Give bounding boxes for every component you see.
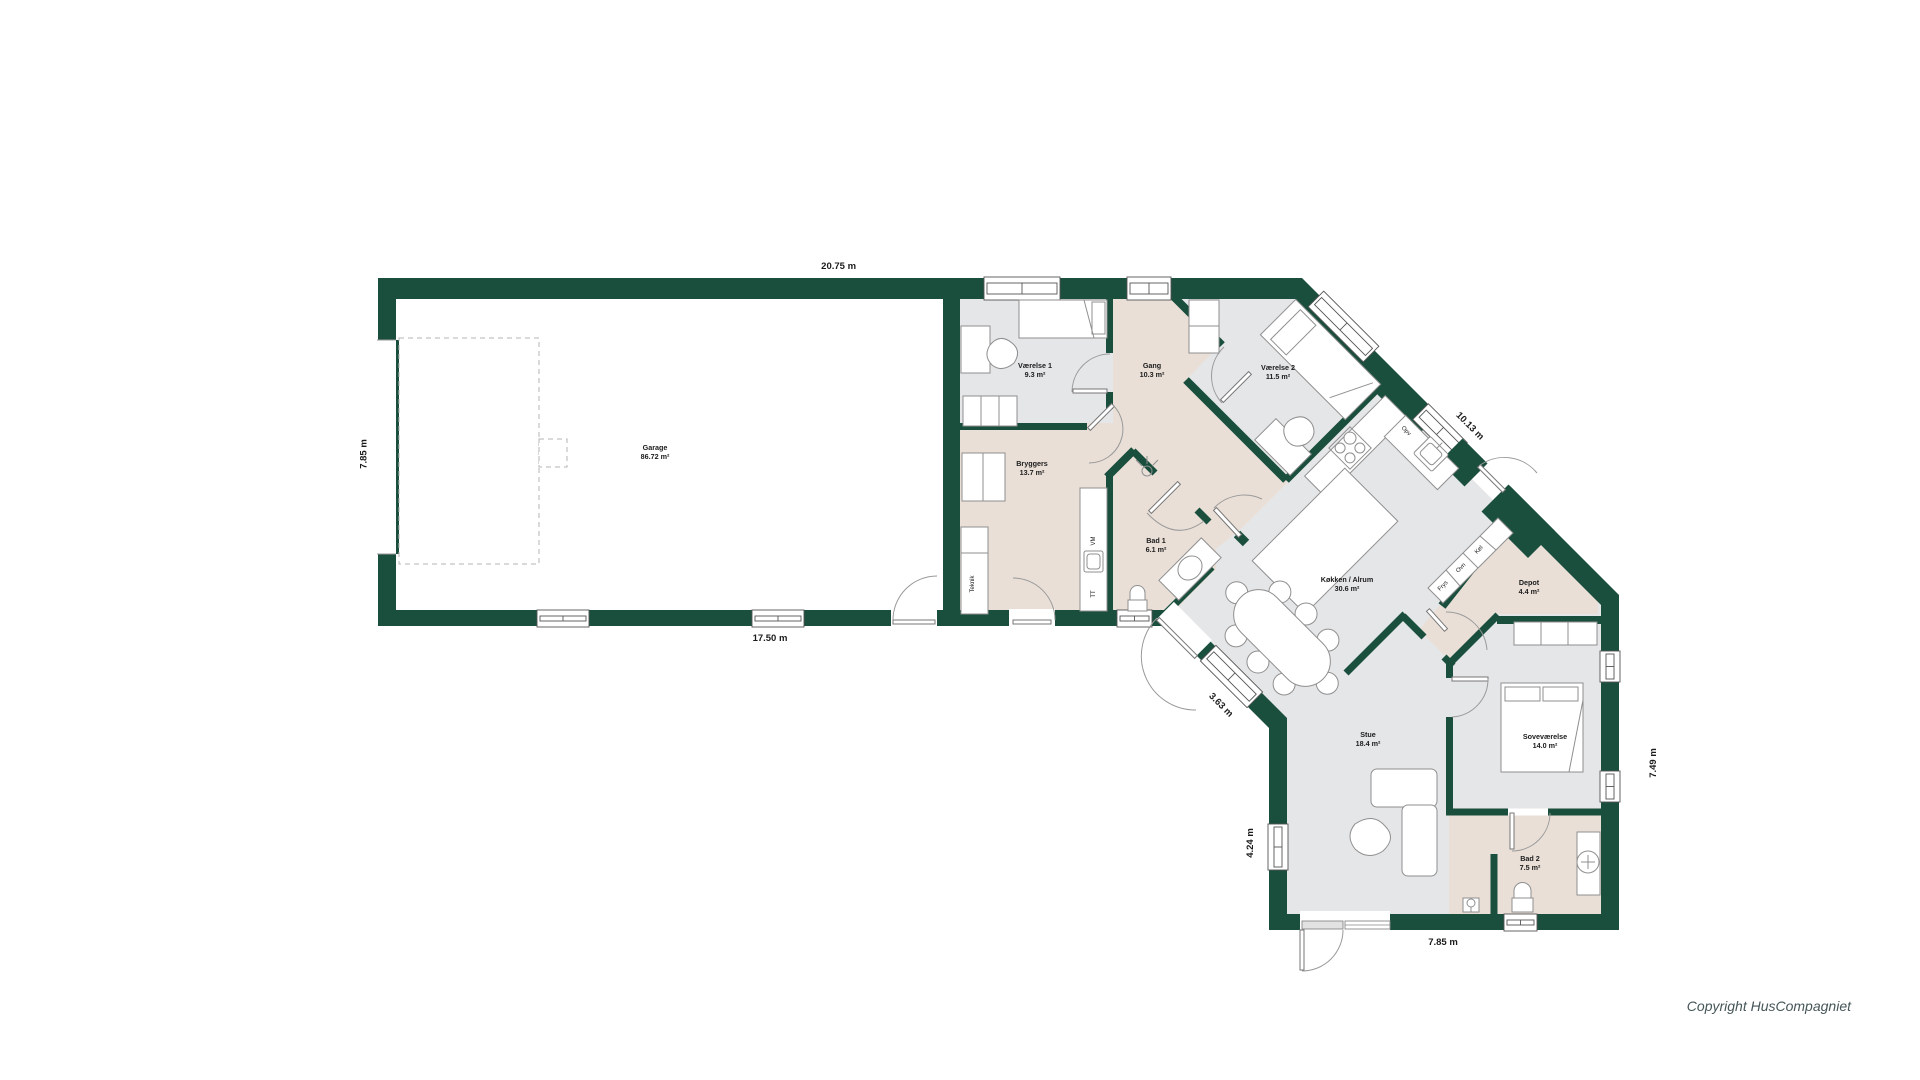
svg-text:6.1 m²: 6.1 m² xyxy=(1146,545,1167,554)
svg-text:13.7 m²: 13.7 m² xyxy=(1020,468,1045,477)
svg-text:7.5 m²: 7.5 m² xyxy=(1520,863,1541,872)
svg-text:10.3 m²: 10.3 m² xyxy=(1140,370,1165,379)
svg-text:7.49 m: 7.49 m xyxy=(1648,748,1659,778)
svg-text:7.85 m: 7.85 m xyxy=(359,439,370,469)
svg-text:17.50 m: 17.50 m xyxy=(753,633,788,644)
svg-text:4.4 m²: 4.4 m² xyxy=(1519,587,1540,596)
svg-text:86.72 m²: 86.72 m² xyxy=(641,452,670,461)
svg-text:Værelse 2: Værelse 2 xyxy=(1261,363,1295,372)
svg-text:Depot: Depot xyxy=(1519,578,1540,587)
svg-text:9.3 m²: 9.3 m² xyxy=(1025,370,1046,379)
svg-text:Køkken / Alrum: Køkken / Alrum xyxy=(1321,575,1373,584)
svg-text:TT: TT xyxy=(1091,590,1097,598)
svg-text:Soveværelse: Soveværelse xyxy=(1523,732,1567,741)
svg-text:Bryggers: Bryggers xyxy=(1016,459,1048,468)
svg-text:Teknik: Teknik xyxy=(970,575,976,593)
svg-text:30.6 m²: 30.6 m² xyxy=(1335,584,1360,593)
svg-text:20.75 m: 20.75 m xyxy=(821,261,856,272)
svg-text:Værelse 1: Værelse 1 xyxy=(1018,361,1052,370)
svg-text:4.24 m: 4.24 m xyxy=(1245,828,1256,858)
svg-text:18.4 m²: 18.4 m² xyxy=(1356,739,1381,748)
svg-text:7.85 m: 7.85 m xyxy=(1428,937,1458,948)
svg-text:Bad 2: Bad 2 xyxy=(1520,854,1540,863)
svg-text:Bad 1: Bad 1 xyxy=(1146,536,1166,545)
svg-text:Stue: Stue xyxy=(1360,730,1376,739)
svg-text:Copyright HusCompagniet: Copyright HusCompagniet xyxy=(1687,998,1852,1014)
svg-text:11.5 m²: 11.5 m² xyxy=(1266,372,1291,381)
svg-text:Gang: Gang xyxy=(1143,361,1161,370)
svg-text:14.0 m²: 14.0 m² xyxy=(1533,741,1558,750)
svg-text:Garage: Garage xyxy=(643,443,668,452)
svg-text:3.63 m: 3.63 m xyxy=(1206,691,1235,720)
svg-text:VM: VM xyxy=(1091,536,1097,545)
